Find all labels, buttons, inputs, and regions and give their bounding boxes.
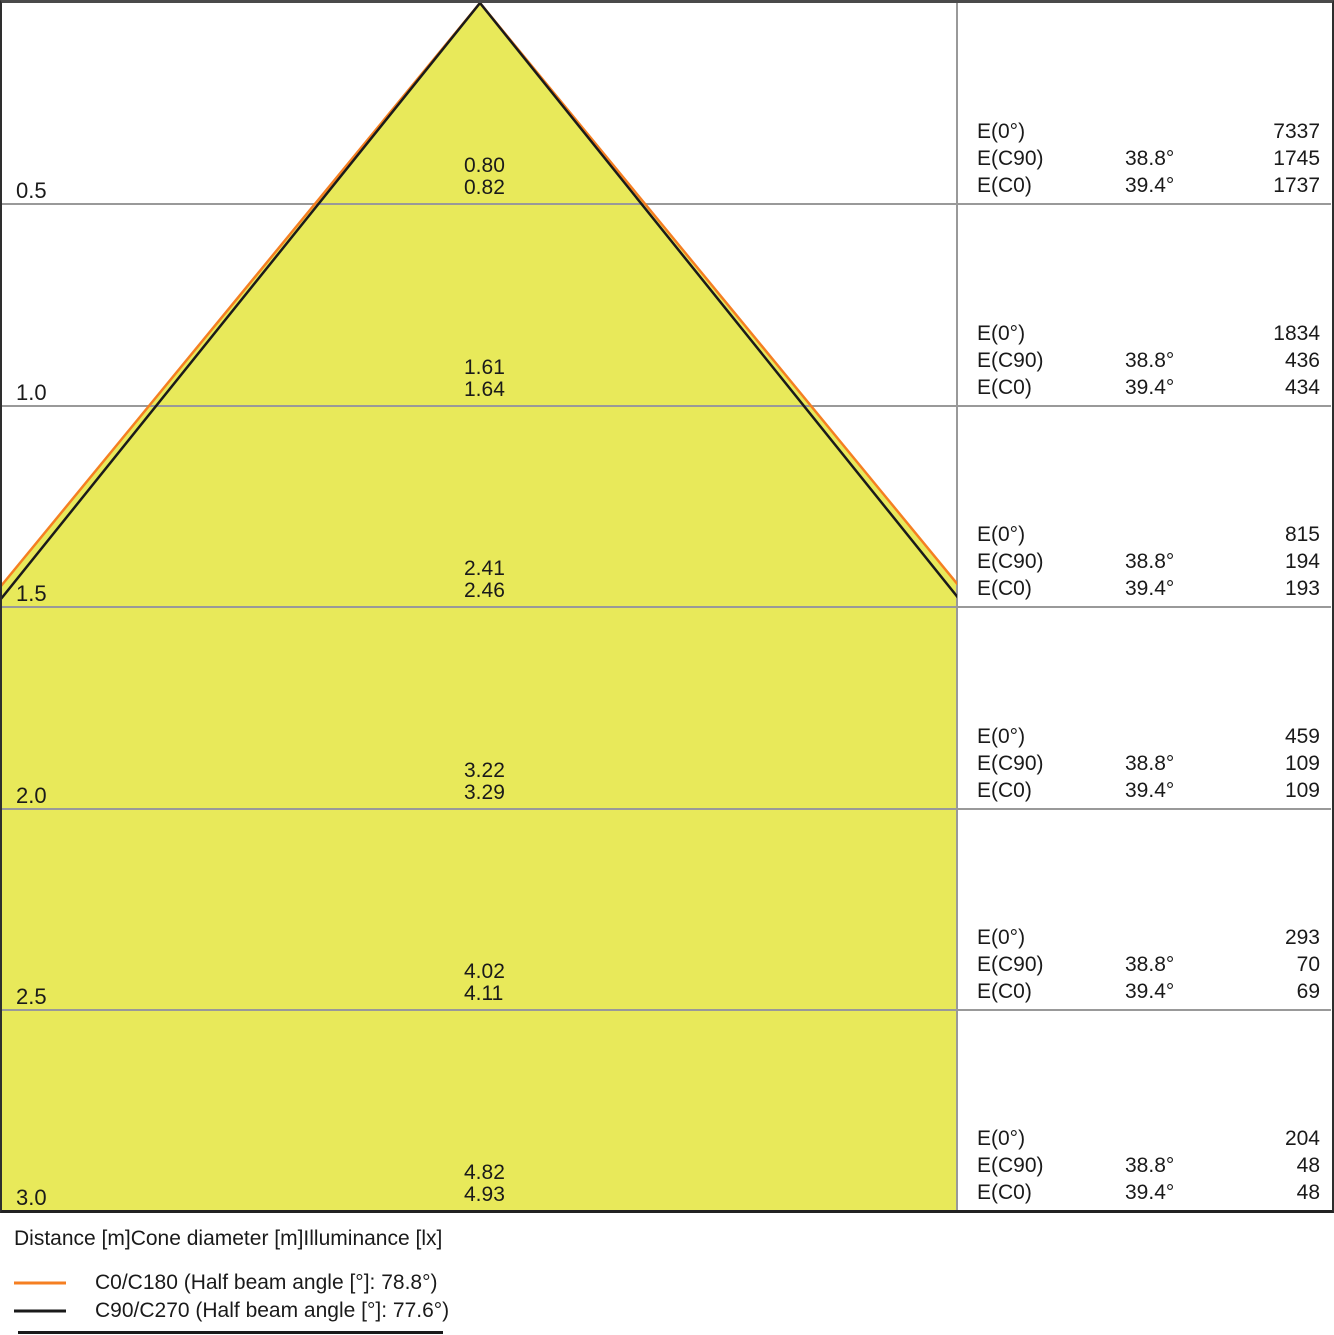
cone-diameter-values: 3.22 3.29 [464, 760, 505, 804]
e0-value: 459 [1285, 723, 1320, 750]
ec0-label: E(C0) [977, 374, 1125, 401]
cone-diameter-values: 4.82 4.93 [464, 1162, 505, 1206]
legend-label-c0-c180: C0/C180 (Half beam angle [°]: 78.8°) [95, 1271, 437, 1295]
ec90-row: E(C90) 38.8° 194 [977, 548, 1320, 575]
cone-diameter-c0-value: 2.46 [464, 580, 505, 602]
cone-diameter-values: 2.41 2.46 [464, 558, 505, 602]
ec90-label: E(C90) [977, 145, 1125, 172]
ec90-row: E(C90) 38.8° 48 [977, 1152, 1320, 1179]
legend-item-c0-c180: C0/C180 (Half beam angle [°]: 78.8°) [14, 1271, 437, 1295]
distance-label: 2.5 [16, 985, 47, 1009]
ec0-angle: 39.4° [1125, 777, 1285, 804]
ec0-value: 109 [1285, 777, 1320, 804]
ec90-label: E(C90) [977, 750, 1125, 777]
illuminance-block: E(0°) 293 E(C90) 38.8° 70 E(C0) 39.4° 69 [977, 924, 1320, 1005]
ec0-value: 48 [1297, 1179, 1320, 1206]
e0-angle [1125, 320, 1273, 347]
ec90-angle: 38.8° [1125, 1152, 1297, 1179]
ec0-value: 1737 [1273, 172, 1320, 199]
ec90-label: E(C90) [977, 951, 1125, 978]
legend-item-c90-c270: C90/C270 (Half beam angle [°]: 77.6°) [14, 1299, 449, 1323]
ec90-angle: 38.8° [1125, 548, 1285, 575]
e0-label: E(0°) [977, 1125, 1125, 1152]
e0-value: 1834 [1273, 320, 1320, 347]
e0-angle [1125, 723, 1285, 750]
cone-diameter-c90-value: 3.22 [464, 760, 505, 782]
distance-label: 2.0 [16, 784, 47, 808]
e0-label: E(0°) [977, 723, 1125, 750]
ec90-row: E(C90) 38.8° 109 [977, 750, 1320, 777]
ec0-value: 193 [1285, 575, 1320, 602]
ec90-label: E(C90) [977, 347, 1125, 374]
illuminance-block: E(0°) 7337 E(C90) 38.8° 1745 E(C0) 39.4°… [977, 118, 1320, 199]
cone-diameter-c0-value: 4.93 [464, 1184, 505, 1206]
ec0-angle: 39.4° [1125, 1179, 1297, 1206]
distance-label: 3.0 [16, 1186, 47, 1210]
e0-angle [1125, 521, 1285, 548]
c0-c180-line-swatch [14, 1281, 66, 1285]
cone-diameter-c90-value: 0.80 [464, 155, 505, 177]
ec90-angle: 38.8° [1125, 750, 1285, 777]
cone-diameter-c0-value: 1.64 [464, 379, 505, 401]
ec0-row: E(C0) 39.4° 69 [977, 978, 1320, 1005]
e0-row: E(0°) 1834 [977, 320, 1320, 347]
ec90-angle: 38.8° [1125, 347, 1285, 374]
distance-label: 0.5 [16, 179, 47, 203]
ec0-value: 69 [1297, 978, 1320, 1005]
ec90-row: E(C90) 38.8° 1745 [977, 145, 1320, 172]
cone-diameter-c90-value: 1.61 [464, 357, 505, 379]
ec90-label: E(C90) [977, 1152, 1125, 1179]
cone-diameter-c0-value: 4.11 [464, 983, 505, 1005]
e0-value: 815 [1285, 521, 1320, 548]
e0-row: E(0°) 293 [977, 924, 1320, 951]
light-cone-diagram: 0.5 0.80 0.82 E(0°) 7337 E(C90) 38.8° 17… [0, 0, 1334, 1335]
bottom-crop-line [18, 1331, 443, 1334]
ec90-angle: 38.8° [1125, 145, 1273, 172]
illuminance-block: E(0°) 1834 E(C90) 38.8° 436 E(C0) 39.4° … [977, 320, 1320, 401]
e0-row: E(0°) 7337 [977, 118, 1320, 145]
ec0-row: E(C0) 39.4° 434 [977, 374, 1320, 401]
e0-value: 204 [1285, 1125, 1320, 1152]
cone-diameter-c0-value: 3.29 [464, 782, 505, 804]
ec0-angle: 39.4° [1125, 172, 1273, 199]
illuminance-block: E(0°) 815 E(C90) 38.8° 194 E(C0) 39.4° 1… [977, 521, 1320, 602]
legend-label-c90-c270: C90/C270 (Half beam angle [°]: 77.6°) [95, 1299, 449, 1323]
ec0-row: E(C0) 39.4° 1737 [977, 172, 1320, 199]
e0-label: E(0°) [977, 924, 1125, 951]
e0-value: 293 [1285, 924, 1320, 951]
ec90-value: 436 [1285, 347, 1320, 374]
cone-diameter-c0-value: 0.82 [464, 177, 505, 199]
ec0-row: E(C0) 39.4° 193 [977, 575, 1320, 602]
ec0-angle: 39.4° [1125, 374, 1285, 401]
e0-angle [1125, 118, 1273, 145]
ec0-row: E(C0) 39.4° 109 [977, 777, 1320, 804]
ec0-label: E(C0) [977, 978, 1125, 1005]
distance-label: 1.0 [16, 381, 47, 405]
ec90-row: E(C90) 38.8° 70 [977, 951, 1320, 978]
ec90-angle: 38.8° [1125, 951, 1297, 978]
distance-label: 1.5 [16, 582, 47, 606]
ec0-angle: 39.4° [1125, 978, 1297, 1005]
ec90-value: 48 [1297, 1152, 1320, 1179]
ec0-row: E(C0) 39.4° 48 [977, 1179, 1320, 1206]
e0-row: E(0°) 204 [977, 1125, 1320, 1152]
ec90-value: 1745 [1273, 145, 1320, 172]
cone-table: 0.5 0.80 0.82 E(0°) 7337 E(C90) 38.8° 17… [0, 0, 1334, 1213]
cone-diameter-values: 0.80 0.82 [464, 155, 505, 199]
cone-diameter-c90-value: 4.82 [464, 1162, 505, 1184]
cone-diameter-values: 1.61 1.64 [464, 357, 505, 401]
ec90-label: E(C90) [977, 548, 1125, 575]
e0-label: E(0°) [977, 521, 1125, 548]
ec0-label: E(C0) [977, 172, 1125, 199]
ec0-value: 434 [1285, 374, 1320, 401]
cone-diameter-c90-value: 4.02 [464, 961, 505, 983]
ec0-label: E(C0) [977, 1179, 1125, 1206]
e0-value: 7337 [1273, 118, 1320, 145]
c90-c270-line-swatch [14, 1309, 66, 1313]
ec0-label: E(C0) [977, 777, 1125, 804]
e0-angle [1125, 1125, 1285, 1152]
axis-caption: Distance [m]Cone diameter [m]Illuminance… [14, 1227, 442, 1251]
illuminance-block: E(0°) 459 E(C90) 38.8° 109 E(C0) 39.4° 1… [977, 723, 1320, 804]
e0-label: E(0°) [977, 118, 1125, 145]
ec90-value: 194 [1285, 548, 1320, 575]
e0-row: E(0°) 459 [977, 723, 1320, 750]
ec90-value: 70 [1297, 951, 1320, 978]
e0-angle [1125, 924, 1285, 951]
illuminance-block: E(0°) 204 E(C90) 38.8° 48 E(C0) 39.4° 48 [977, 1125, 1320, 1206]
e0-row: E(0°) 815 [977, 521, 1320, 548]
ec0-angle: 39.4° [1125, 575, 1285, 602]
e0-label: E(0°) [977, 320, 1125, 347]
ec90-value: 109 [1285, 750, 1320, 777]
ec90-row: E(C90) 38.8° 436 [977, 347, 1320, 374]
cone-diameter-values: 4.02 4.11 [464, 961, 505, 1005]
cone-diameter-c90-value: 2.41 [464, 558, 505, 580]
ec0-label: E(C0) [977, 575, 1125, 602]
